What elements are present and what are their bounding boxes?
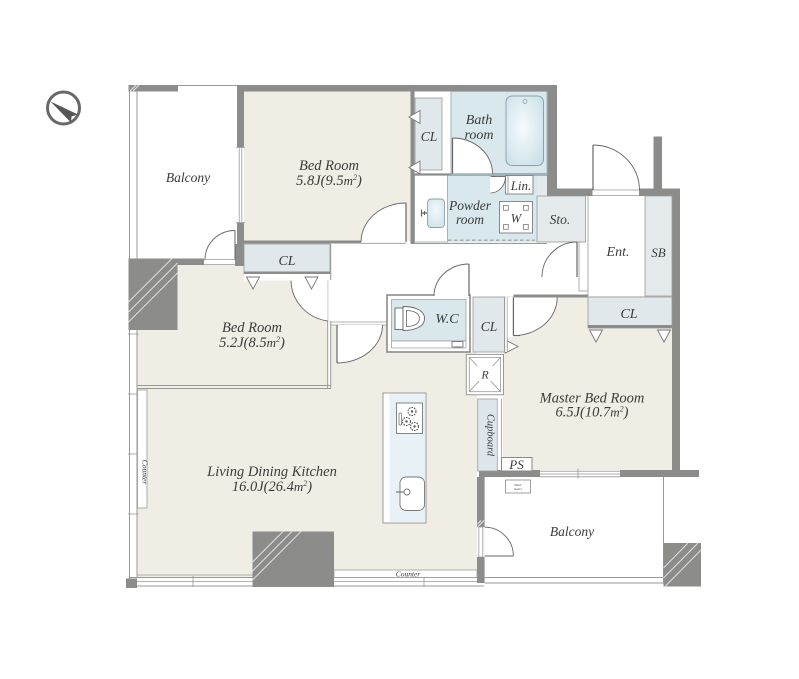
svg-text:CL: CL [620, 307, 637, 322]
svg-text:Bath: Bath [466, 113, 492, 128]
svg-text:W.C: W.C [435, 312, 459, 327]
svg-text:Lin.: Lin. [510, 178, 532, 193]
svg-text:CL: CL [278, 254, 295, 269]
svg-text:Counter: Counter [141, 460, 150, 485]
svg-text:Bed Room: Bed Room [299, 158, 359, 174]
svg-text:Sto.: Sto. [550, 212, 571, 227]
svg-text:5.2J(8.5m2): 5.2J(8.5m2) [219, 335, 285, 351]
svg-text:Living Dining Kitchen: Living Dining Kitchen [206, 464, 337, 480]
svg-text:Balcony: Balcony [550, 524, 594, 539]
svg-text:Ent.: Ent. [606, 245, 630, 260]
svg-text:room: room [464, 128, 493, 143]
svg-text:CL: CL [421, 129, 438, 144]
svg-text:CL: CL [481, 319, 498, 334]
svg-text:Powder: Powder [448, 198, 492, 213]
svg-text:heater: heater [514, 487, 523, 491]
svg-text:room: room [456, 212, 484, 227]
svg-text:Bed Room: Bed Room [222, 320, 282, 336]
svg-text:R: R [480, 368, 489, 382]
svg-text:Cupboard: Cupboard [485, 414, 496, 457]
svg-text:SB: SB [651, 245, 666, 260]
svg-text:16.0J(26.4m2): 16.0J(26.4m2) [232, 479, 312, 495]
svg-text:W: W [511, 212, 523, 226]
svg-text:Balcony: Balcony [166, 170, 210, 185]
svg-text:6.5J(10.7m2): 6.5J(10.7m2) [556, 405, 629, 421]
svg-text:PS: PS [508, 457, 524, 472]
svg-text:5.8J(9.5m2): 5.8J(9.5m2) [296, 173, 362, 189]
svg-text:Counter: Counter [396, 570, 421, 579]
